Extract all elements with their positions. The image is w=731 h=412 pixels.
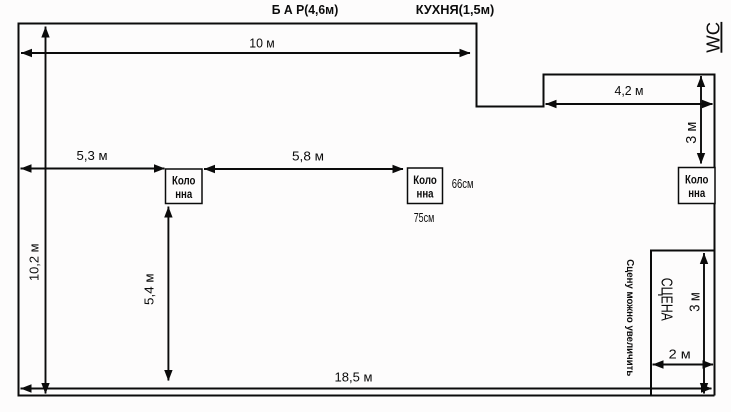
svg-text:66см: 66см bbox=[452, 177, 474, 191]
svg-text:Коло: Коло bbox=[685, 175, 709, 187]
svg-text:СЦЕНА: СЦЕНА bbox=[658, 278, 675, 322]
svg-text:2 м: 2 м bbox=[669, 347, 691, 362]
svg-text:WC: WC bbox=[703, 22, 724, 53]
svg-text:Б А Р(4,6м): Б А Р(4,6м) bbox=[272, 3, 339, 17]
svg-text:10 м: 10 м bbox=[249, 37, 275, 51]
svg-text:3 м: 3 м bbox=[684, 122, 700, 144]
svg-text:КУХНЯ(1,5м): КУХНЯ(1,5м) bbox=[416, 3, 495, 17]
svg-text:нна: нна bbox=[417, 189, 434, 201]
svg-text:3 м: 3 м bbox=[688, 292, 704, 312]
svg-text:Коло: Коло bbox=[172, 176, 196, 188]
svg-text:18,5 м: 18,5 м bbox=[335, 371, 373, 385]
svg-text:4,2 м: 4,2 м bbox=[615, 84, 644, 98]
svg-text:нна: нна bbox=[175, 189, 192, 201]
svg-text:10,2 м: 10,2 м bbox=[28, 244, 42, 282]
svg-text:5,3 м: 5,3 м bbox=[77, 149, 108, 163]
svg-text:нна: нна bbox=[688, 188, 705, 200]
svg-text:Сцену можно увеличить: Сцену можно увеличить bbox=[624, 259, 636, 376]
svg-text:75см: 75см bbox=[414, 211, 435, 225]
svg-text:Коло: Коло bbox=[413, 175, 437, 187]
svg-text:5,8 м: 5,8 м bbox=[292, 150, 324, 164]
svg-text:5,4 м: 5,4 м bbox=[143, 273, 157, 305]
